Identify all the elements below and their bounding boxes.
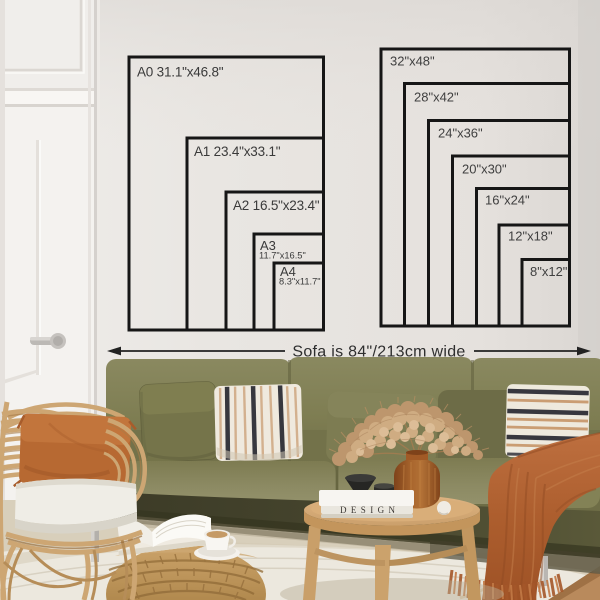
svg-text:A1 23.4"x33.1": A1 23.4"x33.1" <box>194 144 281 159</box>
svg-text:20"x30": 20"x30" <box>462 162 507 177</box>
svg-text:A0 31.1"x46.8": A0 31.1"x46.8" <box>137 65 224 80</box>
svg-text:12"x18": 12"x18" <box>508 229 553 244</box>
svg-text:8.3"x11.7": 8.3"x11.7" <box>279 277 321 287</box>
svg-text:32"x48": 32"x48" <box>390 54 435 69</box>
svg-text:24"x36": 24"x36" <box>438 126 483 141</box>
svg-text:16"x24": 16"x24" <box>485 193 530 208</box>
svg-text:28"x42": 28"x42" <box>414 90 459 105</box>
svg-text:DESIGN: DESIGN <box>340 505 399 515</box>
svg-text:8"x12": 8"x12" <box>530 264 568 279</box>
svg-text:A2 16.5"x23.4": A2 16.5"x23.4" <box>233 198 320 213</box>
svg-text:11.7"x16.5": 11.7"x16.5" <box>259 251 306 261</box>
svg-text:Sofa is 84"/213cm wide: Sofa is 84"/213cm wide <box>292 344 465 361</box>
